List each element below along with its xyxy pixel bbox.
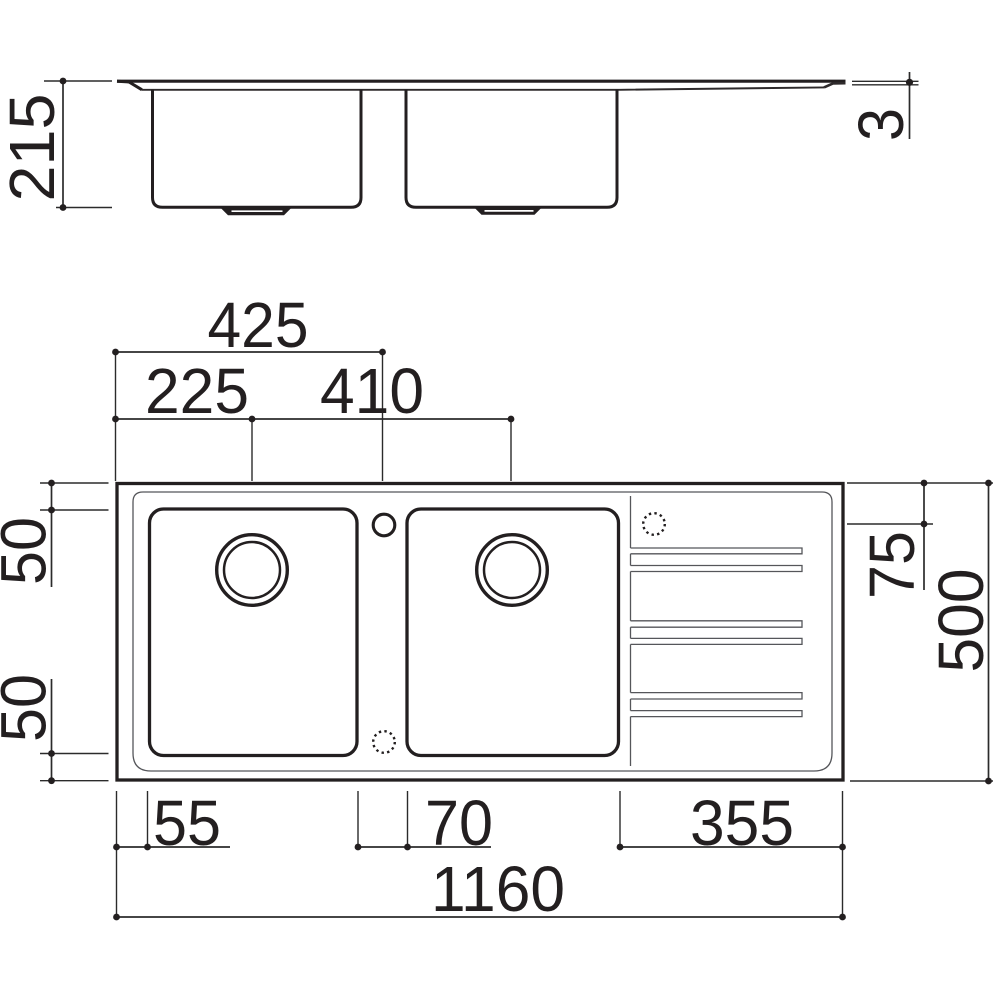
svg-text:55: 55 [153, 787, 221, 859]
svg-text:410: 410 [320, 355, 424, 427]
svg-text:225: 225 [145, 355, 249, 427]
svg-text:425: 425 [208, 289, 309, 361]
svg-text:355: 355 [690, 787, 794, 859]
svg-text:50: 50 [0, 517, 60, 585]
svg-text:50: 50 [0, 674, 60, 742]
svg-text:1160: 1160 [431, 853, 565, 925]
svg-text:215: 215 [0, 94, 68, 202]
svg-text:3: 3 [845, 108, 917, 141]
svg-text:500: 500 [925, 569, 997, 673]
svg-text:75: 75 [856, 531, 928, 599]
svg-text:70: 70 [425, 787, 493, 859]
